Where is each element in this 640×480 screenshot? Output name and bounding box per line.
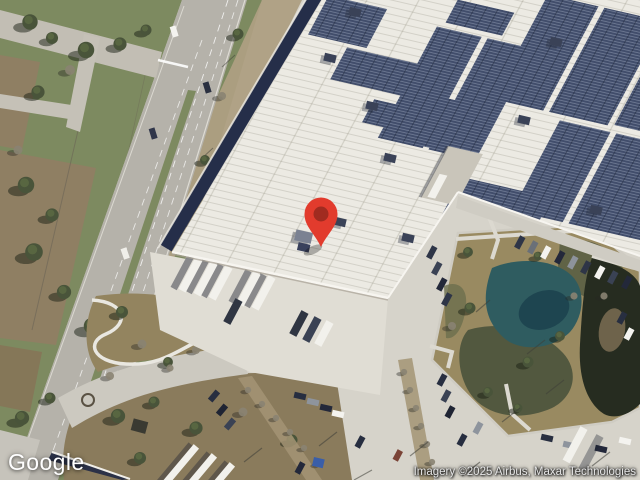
- satellite-map-view[interactable]: Google Imagery ©2025 Airbus, Maxar Techn…: [0, 0, 640, 480]
- map-pin[interactable]: [297, 195, 345, 251]
- imagery-attribution: Imagery ©2025 Airbus, Maxar Technologies: [414, 466, 636, 478]
- google-logo[interactable]: Google: [8, 449, 85, 476]
- pin-inner-circle: [314, 207, 329, 222]
- pin-body: [305, 198, 338, 248]
